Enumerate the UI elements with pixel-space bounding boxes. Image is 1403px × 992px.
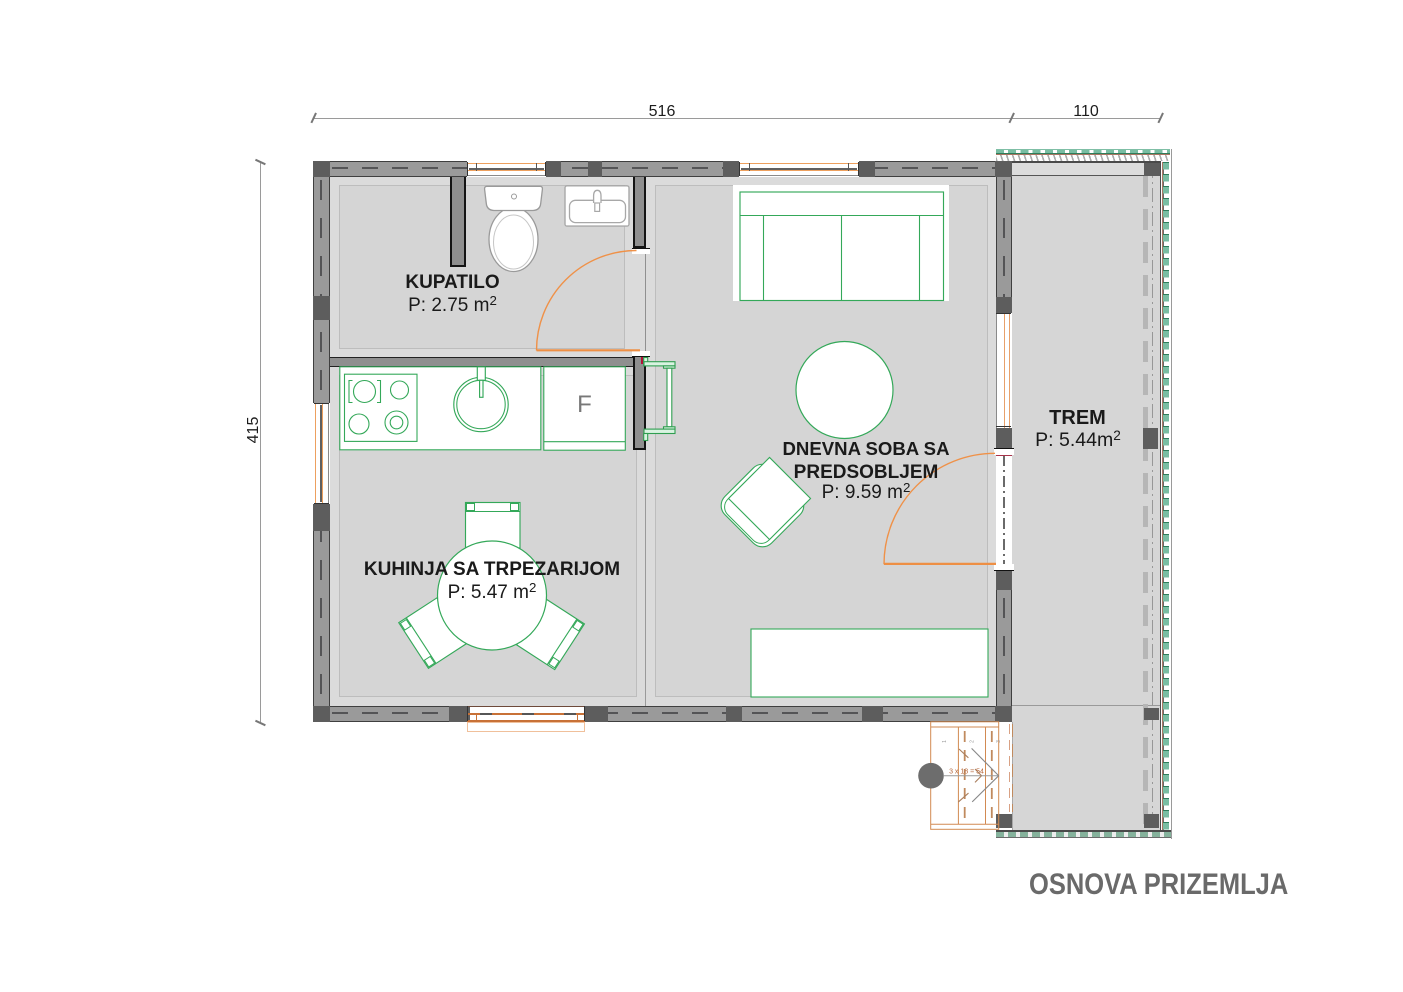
svg-text:F: F xyxy=(577,391,592,418)
svg-text:3: 3 xyxy=(996,740,1002,743)
svg-text:3 x 18 = 54: 3 x 18 = 54 xyxy=(949,768,984,775)
svg-text:1: 1 xyxy=(942,740,948,743)
svg-text:2: 2 xyxy=(970,740,976,743)
